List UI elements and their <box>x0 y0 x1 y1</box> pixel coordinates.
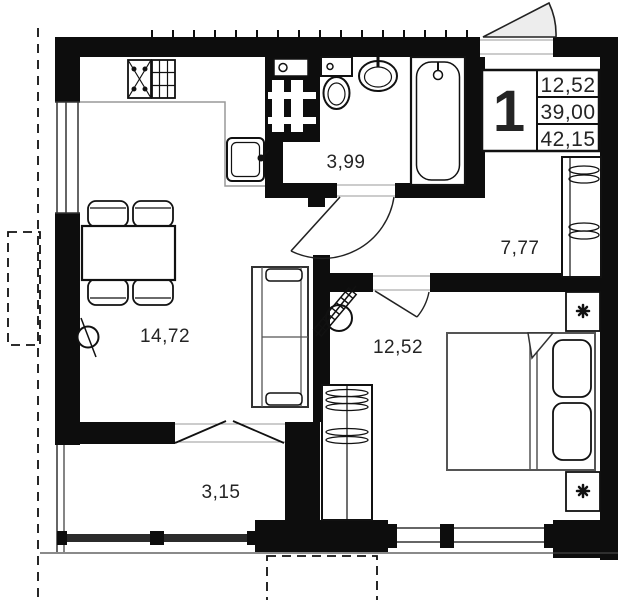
unit-room-area: 12,52 <box>540 74 595 97</box>
floor-plan-canvas: 1 12,52 39,00 42,15 3,99 7,77 14,72 12,5… <box>0 0 624 600</box>
floor-plan: 1 12,52 39,00 42,15 3,99 7,77 14,72 12,5… <box>0 0 624 600</box>
bedroom <box>322 292 600 520</box>
balcony-post-right <box>247 531 257 545</box>
chair-icon <box>133 279 173 305</box>
toilet-icon <box>321 57 352 109</box>
wall-left-mid <box>55 213 80 445</box>
room-label-balcony: 3,15 <box>202 482 241 503</box>
nightstand-icon <box>566 472 600 511</box>
room-label-bathroom: 3,99 <box>327 152 366 173</box>
stove-icon <box>128 60 175 98</box>
pillow <box>553 403 591 460</box>
bed-icon <box>447 333 595 470</box>
bedroom-door-leaf <box>375 291 417 317</box>
unit-info-card: 1 12,52 39,00 42,15 <box>482 70 599 151</box>
balcony-door <box>175 421 285 443</box>
wall-top-left <box>55 37 480 57</box>
dining-table <box>82 226 175 280</box>
unit-number: 1 <box>493 79 525 144</box>
entrance-door-swing <box>483 3 556 37</box>
bedroom-door <box>373 276 430 317</box>
living-room <box>82 201 308 407</box>
lamp-icon <box>577 485 589 497</box>
window-bedroom <box>388 524 553 548</box>
wall-left-upper <box>55 37 80 102</box>
hallway-wardrobe-icon <box>562 157 601 277</box>
nightstand-icon <box>566 292 600 331</box>
room-label-living: 14,72 <box>140 326 190 347</box>
bathtub-icon <box>411 57 465 185</box>
wall-balcony-right <box>285 422 320 523</box>
kitchen-sink-icon <box>227 138 269 181</box>
kitchen <box>80 60 269 186</box>
wall-bottom-right-corner <box>553 520 618 558</box>
wardrobe-icon <box>322 385 372 520</box>
balcony-post-mid <box>150 531 164 545</box>
unit-total-area: 42,15 <box>540 128 595 151</box>
pillow <box>553 340 591 397</box>
wall-hatch-ticks <box>152 30 467 37</box>
boiler-icon <box>274 59 308 76</box>
bedroom-door-arc <box>417 292 429 317</box>
chair-icon <box>88 201 128 227</box>
room-label-bedroom: 12,52 <box>373 337 423 358</box>
wall-bottom-mid <box>255 520 388 552</box>
sink-icon <box>359 57 397 91</box>
wall-bathroom-door-jamb <box>308 183 325 207</box>
window-left <box>55 102 80 213</box>
balcony-post-left <box>57 531 67 545</box>
wall-bathroom-bottom-left <box>265 183 337 198</box>
chair-icon <box>133 201 173 227</box>
left-dashed-balcony-outline <box>8 232 40 345</box>
chair-icon <box>88 279 128 305</box>
sofa-icon <box>252 267 308 407</box>
unit-living-area: 39,00 <box>540 101 595 124</box>
bottom-dashed-balcony-outline <box>267 556 377 600</box>
wall-living-balcony <box>55 422 175 444</box>
room-label-hallway: 7,77 <box>501 238 540 259</box>
vent-symbol-left-wall <box>78 318 99 357</box>
lamp-icon <box>577 305 589 317</box>
bathroom-door-arc <box>291 197 394 258</box>
entrance-door <box>480 3 556 54</box>
wall-right <box>600 37 618 560</box>
